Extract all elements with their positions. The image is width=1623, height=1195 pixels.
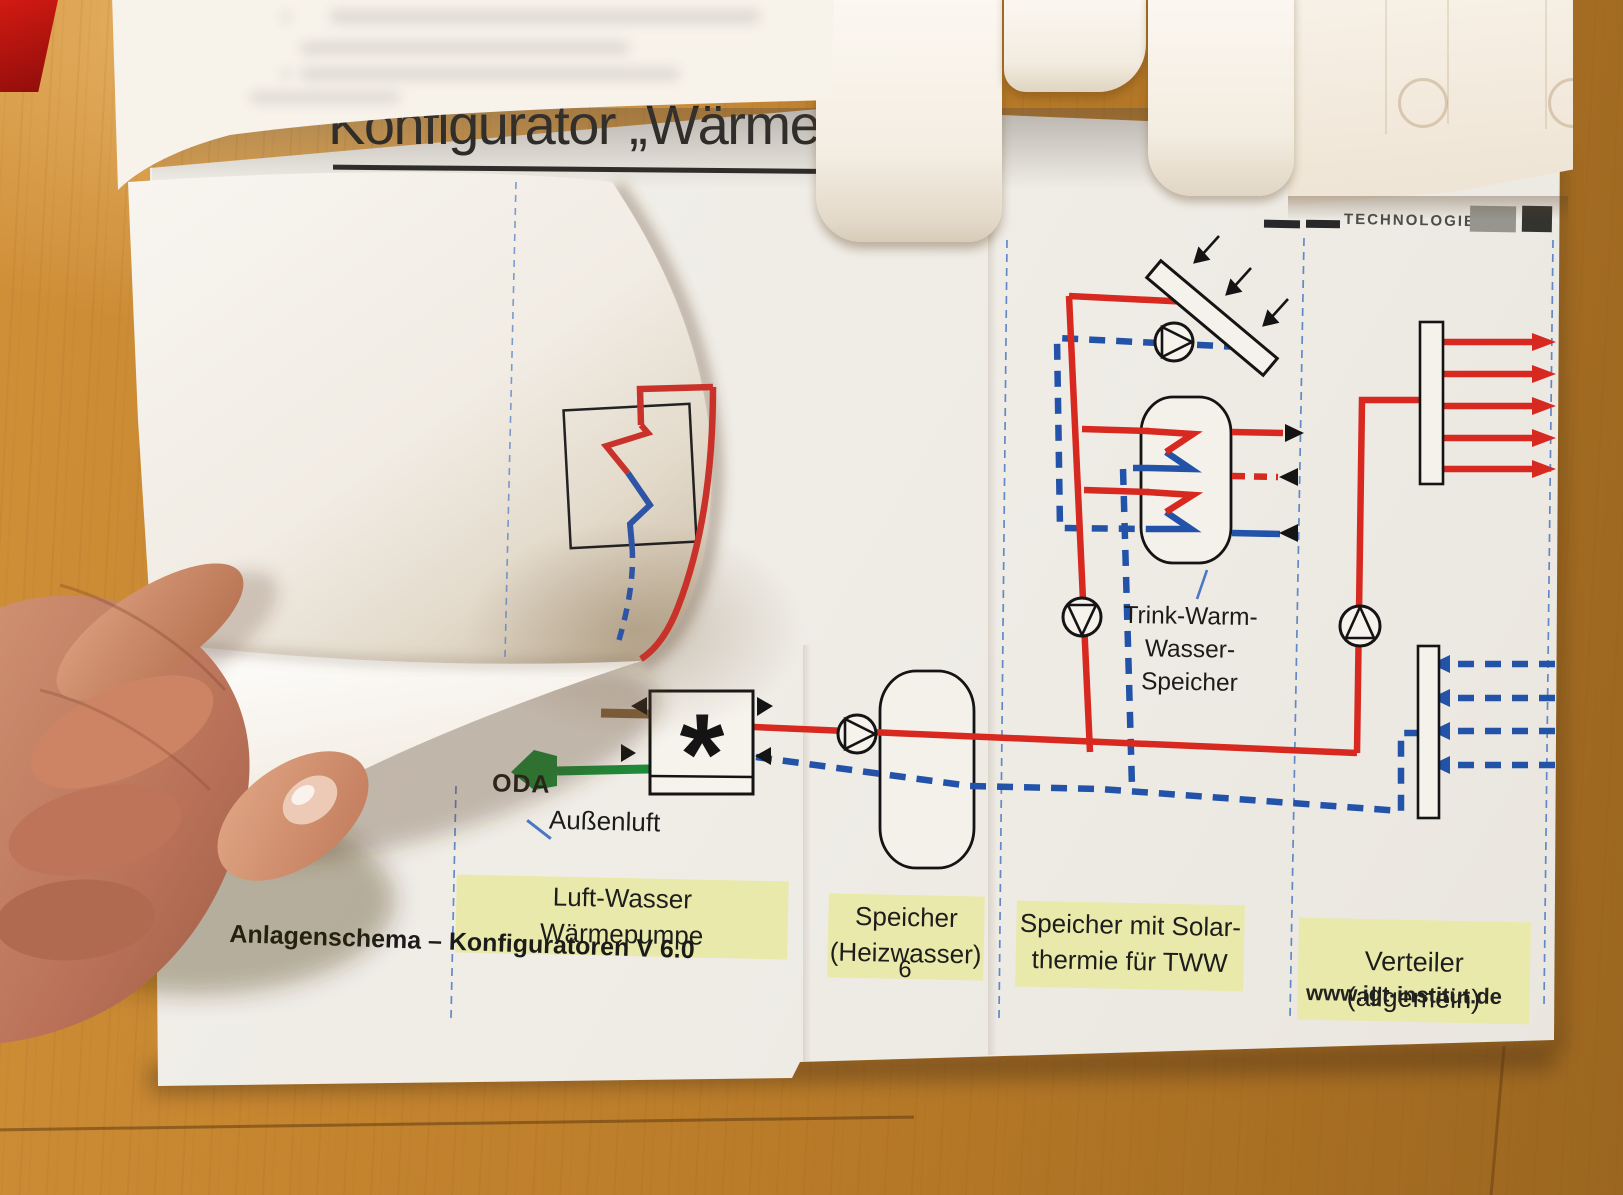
page-number: 6 bbox=[890, 956, 921, 985]
pump-distribution bbox=[1340, 606, 1380, 646]
dhw-callout-line bbox=[1197, 570, 1207, 599]
flip-strip-c bbox=[1148, 0, 1294, 196]
pump-dhw-loading bbox=[1063, 598, 1101, 636]
flip-strip-b bbox=[1004, 0, 1146, 92]
photo-scene: Konfigurator „Wärme“ TECHNOLOGIE bbox=[0, 0, 1623, 1195]
hand bbox=[0, 0, 480, 1195]
dhw-tank bbox=[1141, 397, 1231, 563]
dhw-tank-label: Trink-Warm- Wasser- Speicher bbox=[1099, 598, 1281, 700]
return-collector bbox=[1418, 646, 1439, 818]
ghost-line bbox=[1385, 0, 1387, 134]
supply-distributor bbox=[1420, 322, 1443, 484]
ghost-circle bbox=[1398, 78, 1448, 128]
strip-label-solar-storage: Speicher mit Solar- thermie für TWW bbox=[1015, 901, 1245, 992]
ghost-line bbox=[1545, 0, 1547, 129]
pump-solar bbox=[1155, 323, 1193, 361]
strip-shadow bbox=[1288, 196, 1568, 220]
website-url: www.igt-institut.de bbox=[1306, 980, 1502, 1010]
